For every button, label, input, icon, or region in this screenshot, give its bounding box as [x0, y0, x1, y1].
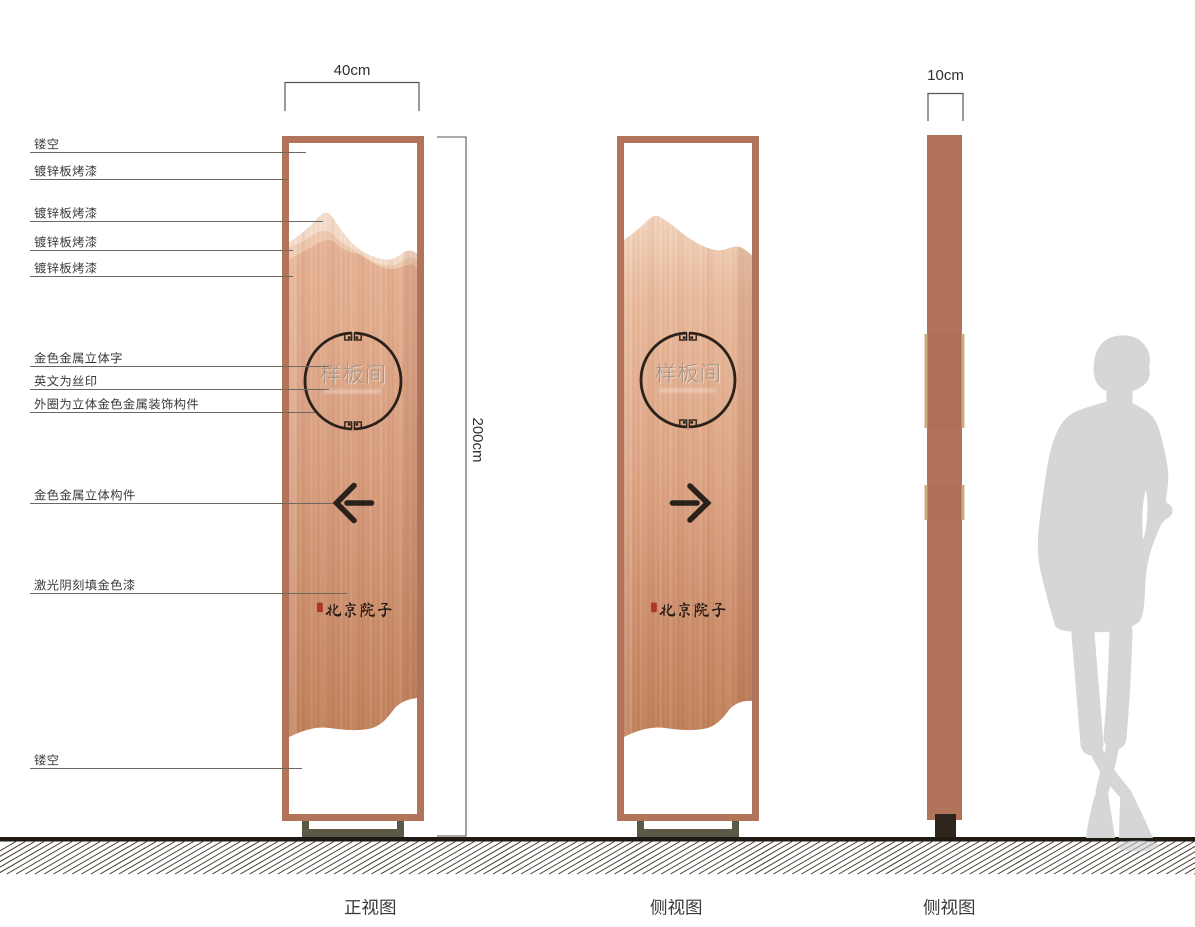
svg-text:10cm: 10cm: [927, 67, 964, 84]
svg-text:40cm: 40cm: [334, 62, 371, 79]
svg-text:200cm: 200cm: [469, 417, 486, 462]
